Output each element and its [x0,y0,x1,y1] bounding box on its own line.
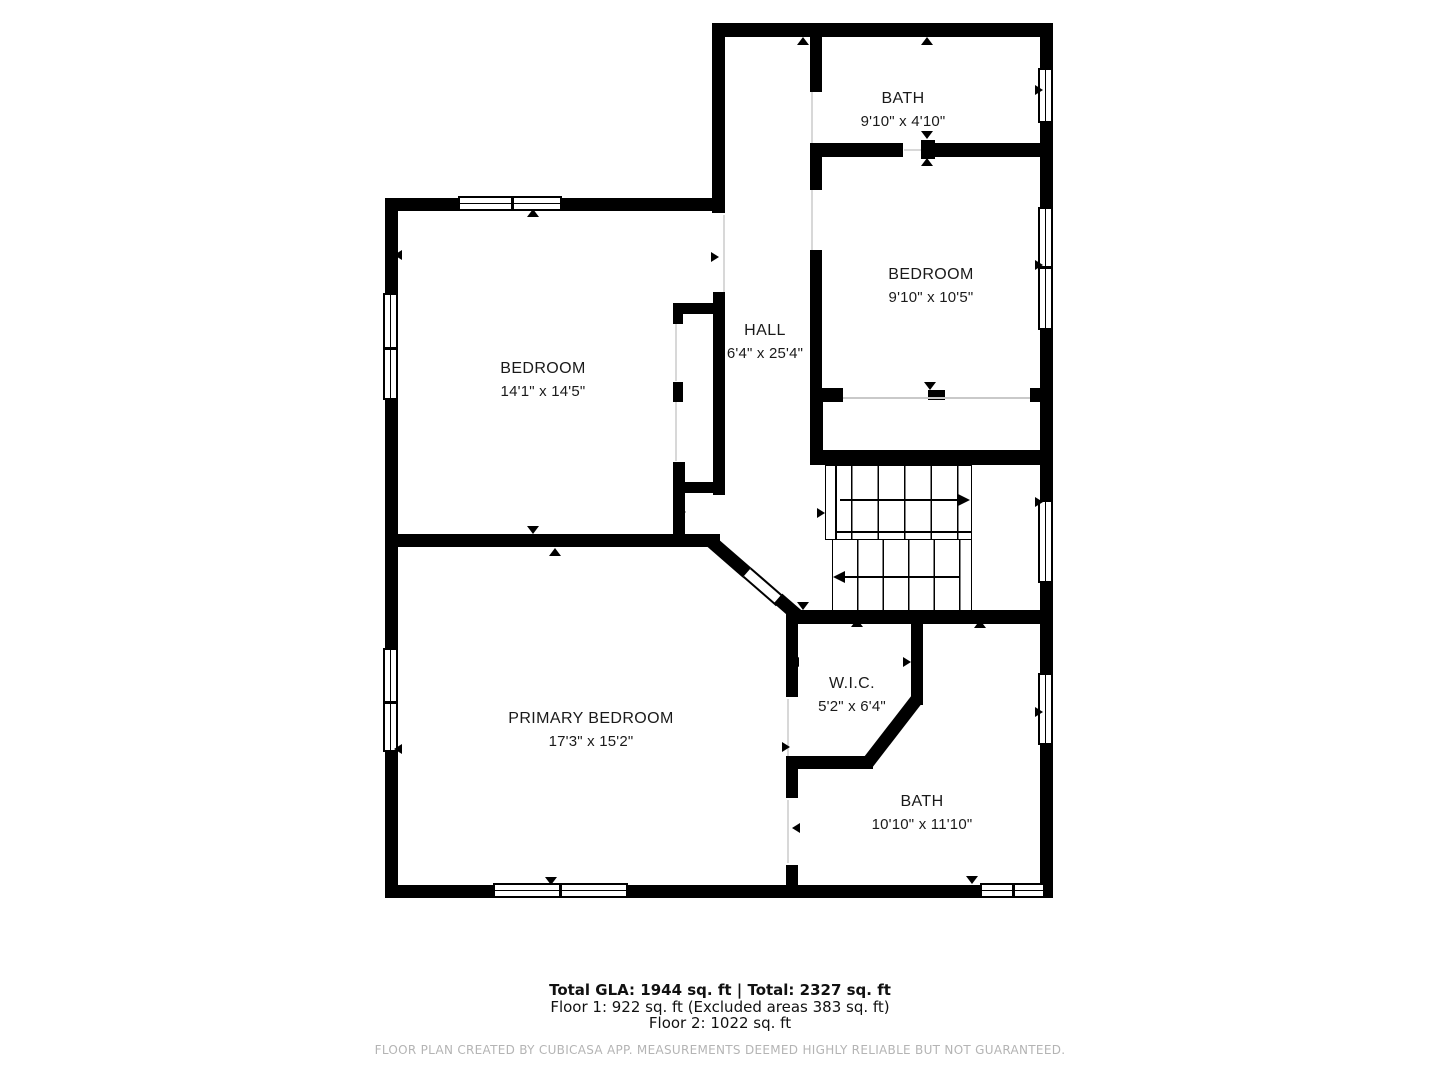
window-arrow-icon [1035,497,1043,507]
door-arrow-icon [921,158,933,166]
door-arrow-icon [924,382,936,390]
room-dimensions: 10'10" x 11'10" [872,816,973,834]
wall [786,756,873,769]
room-label: HALL [727,322,803,340]
room-hall: HALL 6'4" x 25'4" [727,322,803,363]
door-arrow-icon [851,619,863,627]
door-arrow-icon [797,602,809,610]
door-opening [904,149,921,151]
door-arrow-icon [903,657,911,667]
room-boundary-line [843,397,1030,399]
wall [713,292,725,495]
window-mullion [384,701,397,704]
stair-railing [835,531,972,533]
wall [1030,388,1040,402]
window [1038,68,1053,123]
wall [385,885,1053,898]
wall [712,37,725,213]
floor2-area-line: Floor 2: 1022 sq. ft [0,1014,1440,1032]
room-label: PRIMARY BEDROOM [508,710,673,728]
room-dimensions: 9'10" x 4'10" [861,113,946,131]
window-arrow-icon [966,876,978,884]
wall [712,23,1053,37]
stair-direction-arrow [845,576,960,578]
room-dimensions: 14'1" x 14'5" [500,383,585,401]
disclaimer-text: FLOOR PLAN CREATED BY CUBICASA APP. MEAS… [0,1043,1440,1057]
wall [673,303,683,324]
window [383,293,398,400]
window [980,883,1045,898]
wall [673,462,685,542]
door-arrow-icon [921,131,933,139]
room-label: BATH [872,793,973,811]
room-dimensions: 6'4" x 25'4" [727,345,803,363]
door-arrow-icon [527,526,539,534]
room-label: BATH [861,90,946,108]
room-bedroom-left: BEDROOM 14'1" x 14'5" [500,360,585,401]
wall [911,624,923,705]
floor-plan-page: BATH 9'10" x 4'10" BEDROOM 9'10" x 10'5"… [0,0,1440,1080]
door-arrow-icon [921,37,933,45]
room-label: BEDROOM [888,266,973,284]
window-arrow-icon [1035,260,1043,270]
room-bedroom-right: BEDROOM 9'10" x 10'5" [888,266,973,307]
door-arrow-icon [817,508,825,518]
wall [1040,23,1053,898]
window-arrow-icon [527,209,539,217]
staircase-upper-flight [825,465,972,540]
wall [810,37,822,92]
room-bath-bottom: BATH 10'10" x 11'10" [872,793,973,834]
window-mullion [1012,884,1015,897]
room-label: W.I.C. [818,675,886,693]
closet-door-leaf [673,382,683,402]
wall [786,865,798,898]
door-arrow-icon [678,507,686,517]
door-arrow-icon [549,548,561,556]
window [383,648,398,752]
room-bath-top: BATH 9'10" x 4'10" [861,90,946,131]
door-opening [723,215,725,292]
stair-direction-arrow [840,499,960,501]
closet-opening [675,324,677,381]
door-opening [811,190,813,250]
stair-arrow-icon [833,571,845,583]
door-arrow-icon [814,264,822,274]
room-label: BEDROOM [500,360,585,378]
door-arrow-icon [791,657,799,667]
window-arrow-icon [1035,707,1043,717]
staircase-lower-flight [832,540,972,610]
wall [810,157,822,190]
window [493,883,628,898]
window-arrow-icon [394,250,402,260]
room-dimensions: 9'10" x 10'5" [888,289,973,307]
door-arrow-icon [797,37,809,45]
door-leaf [921,140,935,159]
window [458,196,562,211]
window-arrow-icon [545,877,557,885]
window [1038,500,1053,583]
room-primary-bedroom: PRIMARY BEDROOM 17'3" x 15'2" [508,710,673,751]
window-arrow-icon [394,744,402,754]
door-arrow-icon [711,252,719,262]
stair-railing [835,465,837,540]
window-arrow-icon [1035,85,1043,95]
door-arrow-icon [974,620,986,628]
wall-diagonal [706,536,752,579]
door-arrow-icon [792,823,800,833]
door-opening [787,800,789,863]
wall [786,610,1040,624]
total-area-line: Total GLA: 1944 sq. ft | Total: 2327 sq.… [0,981,1440,999]
window-mullion [384,347,397,350]
wall [812,450,1040,465]
door-opening [811,92,813,143]
door-arrow-icon [782,742,790,752]
room-dimensions: 17'3" x 15'2" [508,733,673,751]
closet-opening [675,402,677,461]
wall [935,143,1040,157]
wall [385,534,720,547]
window-mullion [511,197,514,210]
stair-arrow-icon [958,494,970,506]
window-mullion [559,884,562,897]
room-dimensions: 5'2" x 6'4" [818,698,886,716]
wall [810,143,903,157]
room-wic: W.I.C. 5'2" x 6'4" [818,675,886,716]
